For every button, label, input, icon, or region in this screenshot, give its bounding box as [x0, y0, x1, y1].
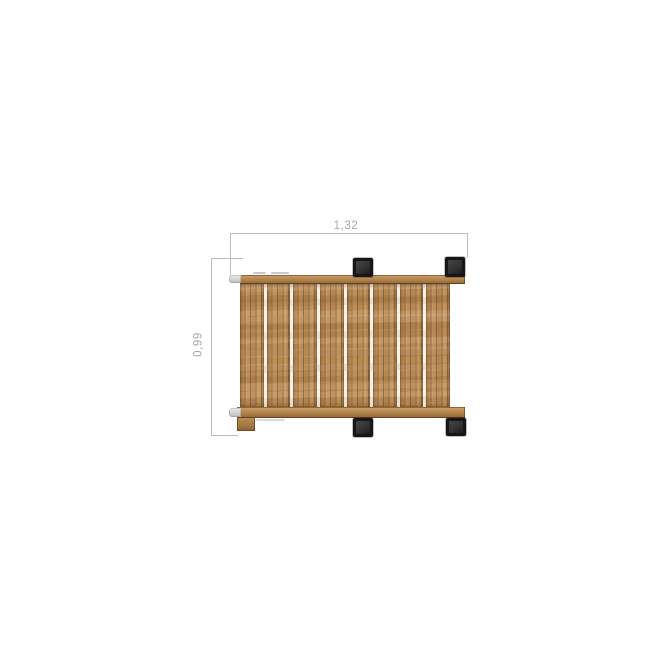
- leg-cap-top-right: [445, 257, 465, 277]
- wood-slat: [426, 284, 450, 407]
- top-rail: [240, 275, 465, 284]
- metal-end-cap-top-left: [229, 275, 241, 283]
- wood-slat: [240, 284, 264, 407]
- slat-area: [240, 284, 450, 407]
- leg-cap-bottom-left: [353, 418, 373, 437]
- leg-cap-inner: [356, 261, 370, 274]
- width-dimension-label: 1,32: [322, 220, 370, 232]
- wood-tab-bottom-left: [237, 416, 255, 431]
- height-dimension-extension-top: [211, 258, 243, 259]
- tab-shadow-line: [256, 419, 285, 421]
- wood-slat: [320, 284, 344, 407]
- width-dimension-extension-left: [230, 233, 231, 276]
- rail-fitting-mark: [253, 272, 266, 274]
- width-dimension-line: [230, 233, 468, 234]
- width-dimension-extension-right: [467, 233, 468, 258]
- wood-slat: [400, 284, 424, 407]
- drawing-canvas: 1,32 0,99: [0, 0, 660, 660]
- leg-cap-inner: [449, 421, 463, 433]
- leg-cap-top-left: [353, 258, 373, 277]
- leg-cap-inner: [448, 260, 462, 274]
- height-dimension-extension-bottom: [211, 435, 238, 436]
- height-dimension-line: [211, 258, 212, 436]
- wood-slat: [267, 284, 291, 407]
- leg-cap-bottom-right: [446, 418, 466, 436]
- metal-end-cap-bottom-left: [229, 408, 241, 417]
- rail-fitting-mark: [271, 272, 289, 274]
- wood-slat: [293, 284, 317, 407]
- wood-slat: [347, 284, 371, 407]
- height-dimension-label: 0,99: [193, 325, 206, 365]
- bottom-rail: [237, 407, 465, 418]
- wood-slat: [373, 284, 397, 407]
- leg-cap-inner: [356, 421, 370, 434]
